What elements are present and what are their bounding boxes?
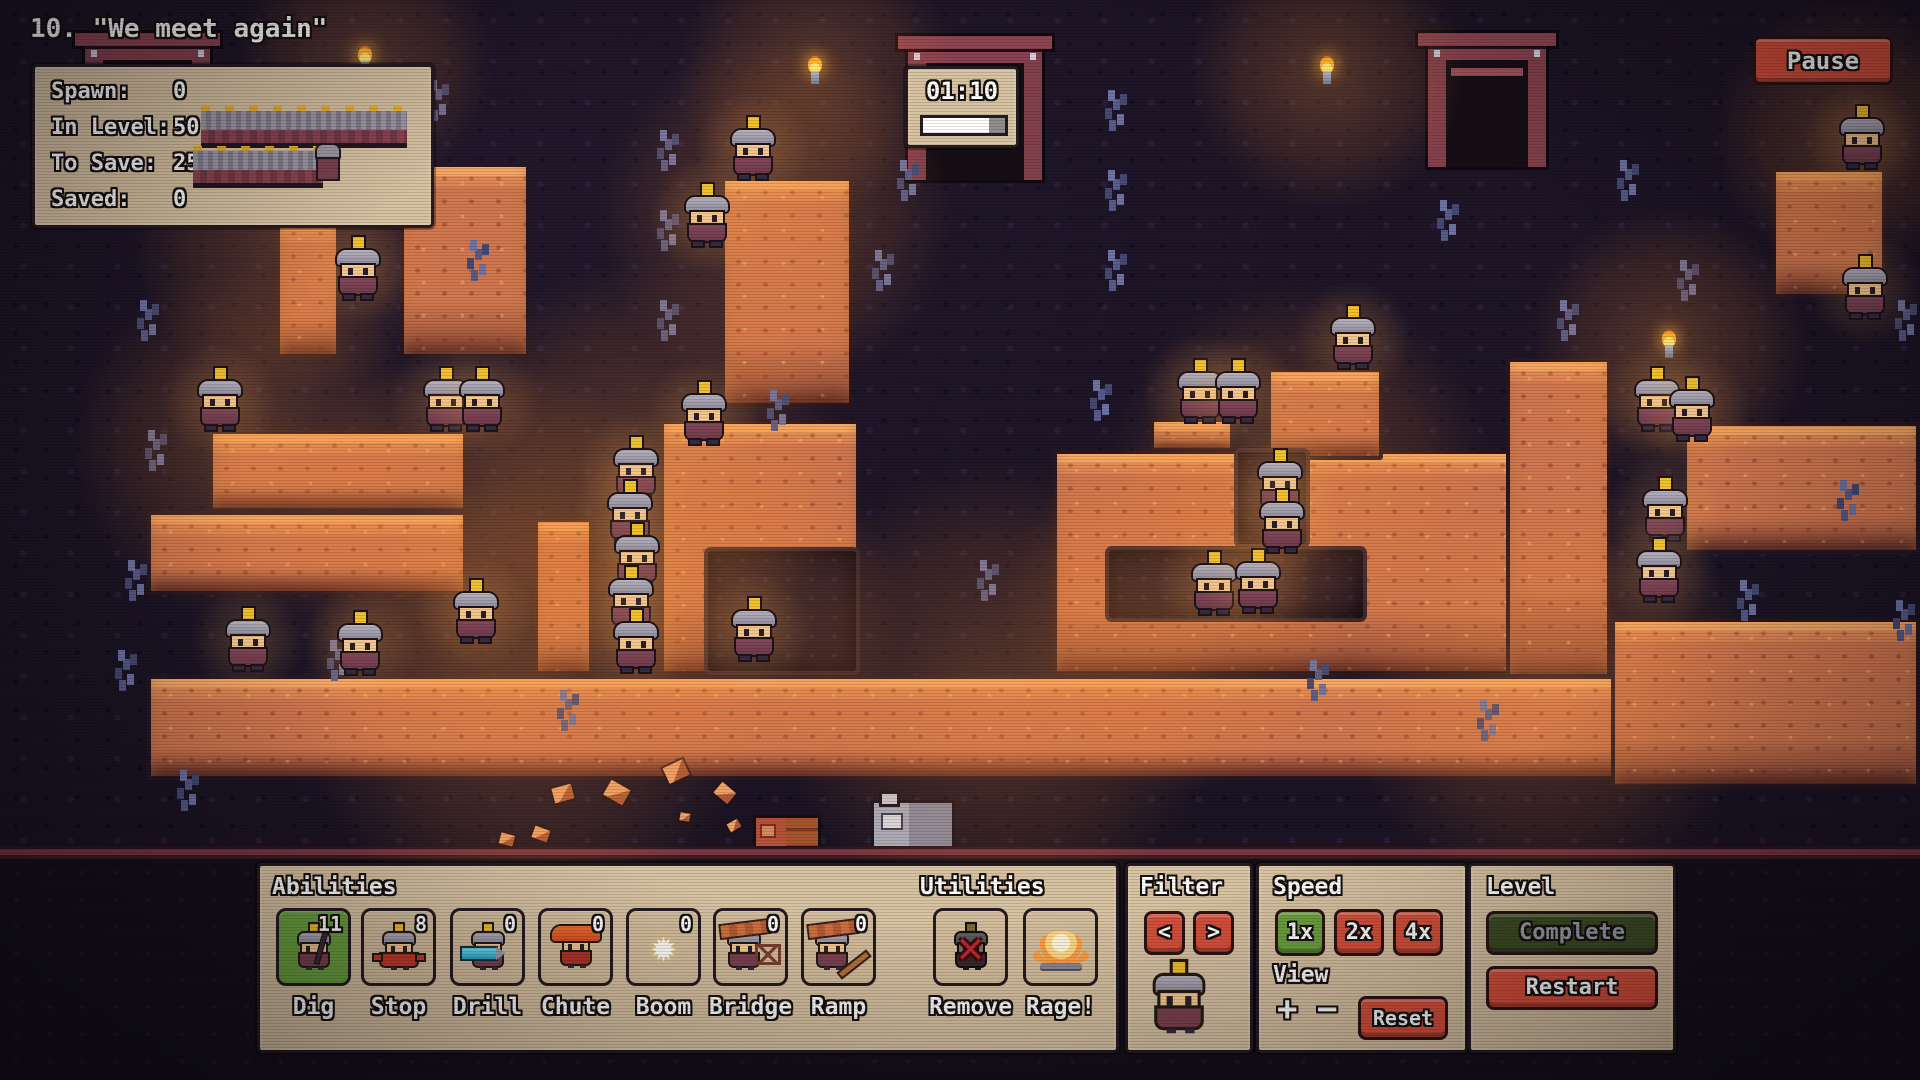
- miner-body: [1674, 419, 1710, 435]
- miner[interactable]: [452, 580, 500, 642]
- filter-next-button[interactable]: >: [1193, 911, 1234, 955]
- rage-button[interactable]: [1023, 908, 1098, 986]
- crowd-endcap-miner: [317, 145, 339, 181]
- miner-feet: [1244, 608, 1254, 612]
- boom-button[interactable]: 0 ✹: [626, 908, 701, 986]
- stat-row-spawn: Spawn:0: [51, 81, 186, 111]
- miner-face: [344, 640, 376, 653]
- pause-button[interactable]: Pause: [1753, 36, 1893, 85]
- in-level-crowd-bar: [201, 111, 407, 148]
- miner-feet: [1848, 164, 1858, 168]
- miner-helmet: [1217, 373, 1259, 388]
- timer-progress-fill: [923, 118, 989, 133]
- dirt-debris-particle: [727, 819, 742, 833]
- torch-icon: [1662, 330, 1676, 358]
- mineral-speckles: [1108, 170, 1115, 181]
- torch-stem: [811, 71, 819, 84]
- miner-body: [736, 639, 772, 655]
- timer-panel: 01:10: [905, 66, 1019, 148]
- miner-face: [738, 626, 770, 639]
- door-light-pip: [91, 50, 97, 57]
- door-light-pip: [1434, 50, 1440, 57]
- miner-face: [466, 396, 498, 409]
- torch-icon: [808, 56, 822, 84]
- miner-body: [202, 409, 238, 425]
- miner-face: [620, 638, 652, 651]
- door-inner-lintel: [1451, 68, 1523, 76]
- miner-body: [342, 653, 378, 669]
- view-reset-button[interactable]: Reset: [1358, 996, 1448, 1040]
- utility-remove: ✕ Remove: [933, 908, 1008, 986]
- miner[interactable]: [336, 612, 384, 674]
- torch-stem: [1323, 71, 1331, 84]
- spawn-door: [1428, 45, 1546, 167]
- miner-face: [1643, 567, 1675, 580]
- remove-x-icon: ✕: [936, 911, 1005, 983]
- miner-body: [618, 651, 654, 667]
- mineral-speckles: [1440, 200, 1447, 211]
- miner-face: [1337, 334, 1369, 347]
- stats-panel: Spawn:0 In Level:50 To Save:25 Saved:0: [32, 64, 434, 228]
- door-lintel: [898, 36, 1052, 49]
- stat-row-in-level: In Level:50: [51, 117, 200, 147]
- miner-body: [1641, 580, 1677, 596]
- timer-value: 01:10: [908, 79, 1016, 103]
- level-panel: Level Complete Restart: [1468, 863, 1676, 1053]
- miner-helmet: [461, 381, 503, 396]
- utilities-header: Utilities: [920, 876, 1045, 899]
- mineral-speckles: [1108, 250, 1115, 261]
- ability-dig: 11 Dig: [276, 908, 351, 986]
- miner-body: [1847, 297, 1883, 313]
- timer-progress-bar: [920, 115, 1008, 136]
- chevron-right-icon: >: [1207, 922, 1220, 944]
- rage-label: Rage!: [1026, 996, 1095, 1019]
- abilities-panel: Abilities Utilities 11 Dig 8 Stop 0 Dril…: [257, 863, 1119, 1053]
- miner-feet: [462, 638, 472, 642]
- mineral-speckles: [1740, 580, 1747, 591]
- miner-body: [1335, 347, 1371, 363]
- miner[interactable]: [730, 598, 778, 660]
- miner[interactable]: [1258, 490, 1306, 552]
- miner-feet: [740, 656, 750, 660]
- dirt-debris-particle: [603, 780, 630, 805]
- miner-face: [460, 608, 492, 621]
- miner-helmet: [732, 130, 774, 145]
- miner-feet: [344, 295, 354, 299]
- miner-feet: [206, 426, 216, 430]
- miner-body: [340, 278, 376, 294]
- dirt-debris-particle: [531, 826, 550, 843]
- miner[interactable]: [458, 368, 506, 430]
- ramp-button[interactable]: 0: [801, 908, 876, 986]
- miner-helmet: [615, 623, 657, 638]
- miner-face: [1849, 284, 1881, 297]
- mineral-speckles: [180, 770, 187, 781]
- drill-bit-icon: [462, 948, 496, 959]
- mineral-speckles: [1680, 260, 1687, 271]
- torch-stem: [1665, 345, 1673, 358]
- mineral-speckles: [980, 560, 987, 571]
- miner-face: [1846, 134, 1878, 147]
- miner-feet: [1645, 597, 1655, 601]
- door-lintel: [1418, 33, 1556, 46]
- mineral-speckles: [1480, 700, 1487, 711]
- miner-helmet: [1332, 319, 1374, 334]
- speed-header: Speed: [1273, 876, 1342, 899]
- view-header: View: [1273, 964, 1328, 987]
- miner-feet: [234, 666, 244, 670]
- mineral-speckles: [1896, 600, 1903, 611]
- door-light-pip: [198, 50, 204, 57]
- rage-explosion-icon: [1038, 931, 1084, 963]
- mineral-speckles: [1840, 480, 1847, 491]
- miner[interactable]: [224, 608, 272, 670]
- mineral-speckles: [128, 560, 135, 571]
- miner-helmet: [1844, 269, 1886, 284]
- miner-body: [1220, 401, 1256, 417]
- miner[interactable]: [1214, 360, 1262, 422]
- miner-face: [342, 265, 374, 278]
- chute-label: Chute: [541, 996, 610, 1019]
- mineral-speckles: [1108, 90, 1115, 101]
- level-header: Level: [1486, 876, 1555, 899]
- miner[interactable]: [729, 117, 777, 179]
- dig-label: Dig: [293, 996, 335, 1019]
- bridge-trestle-icon: [755, 944, 781, 965]
- miner[interactable]: [196, 368, 244, 430]
- dirt-debris-particle: [714, 782, 736, 804]
- remove-button[interactable]: ✕: [933, 908, 1008, 986]
- remove-label: Remove: [929, 996, 1012, 1019]
- mineral-speckles: [118, 650, 125, 661]
- mineral-speckles: [148, 430, 155, 441]
- chevron-left-icon: <: [1158, 922, 1171, 944]
- ability-chute: 0 Chute: [538, 908, 613, 986]
- miner-body: [1240, 591, 1276, 607]
- miner-feet: [1224, 418, 1234, 422]
- mineral-speckles: [1560, 300, 1567, 311]
- miner[interactable]: [612, 610, 660, 672]
- miner-face: [1676, 406, 1708, 419]
- filter-miner-icon: [1153, 962, 1206, 1033]
- mineral-speckles: [900, 160, 907, 171]
- chute-miner-icon: [559, 924, 593, 970]
- stat-row-to-save: To Save:25: [51, 153, 200, 183]
- terrain-block: [1611, 618, 1920, 788]
- light-glow: [1188, 0, 1468, 212]
- door-light-pip: [1030, 53, 1036, 60]
- miner-helmet: [1644, 491, 1686, 506]
- miner-feet: [1851, 314, 1861, 318]
- miner-helmet: [1841, 119, 1883, 134]
- ramp-label: Ramp: [811, 996, 866, 1019]
- miner-feet: [1678, 436, 1688, 440]
- filter-prev-button[interactable]: <: [1144, 911, 1185, 955]
- miner-helmet: [339, 625, 381, 640]
- miner-body: [1264, 531, 1300, 547]
- mineral-speckles: [660, 130, 667, 141]
- stat-row-saved: Saved:0: [51, 189, 186, 219]
- miner-feet: [693, 242, 703, 246]
- miner-helmet: [733, 611, 775, 626]
- miner-helmet: [455, 593, 497, 608]
- mineral-speckles: [560, 690, 567, 701]
- to-save-crowd-bar: [193, 151, 323, 188]
- speed-panel: Speed 1x 2x 4x View + − Reset: [1256, 863, 1468, 1053]
- bridge-button[interactable]: 0: [713, 908, 788, 986]
- stop-button[interactable]: 8: [361, 908, 436, 986]
- miner[interactable]: [1838, 106, 1886, 168]
- door-light-pip: [1534, 50, 1540, 57]
- bridge-label: Bridge: [709, 996, 792, 1019]
- level-complete-button[interactable]: Complete: [1486, 911, 1658, 955]
- miner-face: [688, 410, 720, 423]
- miner[interactable]: [1635, 539, 1683, 601]
- miner-body: [230, 649, 266, 665]
- stop-label: Stop: [371, 996, 426, 1019]
- miner-helmet: [1261, 503, 1303, 518]
- miner[interactable]: [1668, 378, 1716, 440]
- miner-helmet: [1671, 391, 1713, 406]
- miner-feet: [346, 670, 356, 674]
- miner-face: [204, 396, 236, 409]
- boom-label: Boom: [636, 996, 691, 1019]
- torch-icon: [1320, 56, 1334, 84]
- level-floor-line: [0, 846, 1920, 859]
- miner-face: [691, 212, 723, 225]
- mineral-speckles: [875, 250, 882, 261]
- miner-helmet: [227, 621, 269, 636]
- miner-face: [1266, 518, 1298, 531]
- miner-helmet: [683, 395, 725, 410]
- miner-feet: [468, 426, 478, 430]
- mineral-speckles: [140, 300, 147, 311]
- miner-body: [735, 158, 771, 174]
- mineral-speckles: [770, 390, 777, 401]
- miner-feet: [622, 668, 632, 672]
- filter-header: Filter: [1140, 876, 1223, 899]
- door-light-pip: [914, 53, 920, 60]
- mineral-speckles: [1620, 160, 1627, 171]
- speed-4x-button[interactable]: 4x: [1393, 909, 1443, 956]
- mineral-speckles: [470, 240, 477, 251]
- ability-drill: 0 Drill: [450, 908, 525, 986]
- miner-helmet: [199, 381, 241, 396]
- chute-button[interactable]: 0: [538, 908, 613, 986]
- filter-panel: Filter < >: [1125, 863, 1253, 1053]
- ability-bridge: 0 Bridge: [713, 908, 788, 986]
- drill-label: Drill: [453, 996, 522, 1019]
- miner-body: [689, 225, 725, 241]
- miner-body: [458, 621, 494, 637]
- dirt-debris-particle: [551, 784, 574, 804]
- utility-rage: Rage!: [1023, 908, 1098, 986]
- dirt-debris-particle: [679, 812, 690, 821]
- miner-face: [232, 636, 264, 649]
- miner[interactable]: [1841, 256, 1889, 318]
- level-title: 10. "We meet again": [30, 16, 327, 42]
- miner-body: [1844, 147, 1880, 163]
- ability-ramp: 0 Ramp: [801, 908, 876, 986]
- miner-face: [737, 145, 769, 158]
- level-restart-button[interactable]: Restart: [1486, 966, 1658, 1010]
- miner-helmet: [337, 250, 379, 265]
- speed-2x-button[interactable]: 2x: [1334, 909, 1384, 956]
- zoom-in-button[interactable]: +: [1277, 992, 1297, 1026]
- mineral-speckles: [1093, 380, 1100, 391]
- ability-stop: 8 Stop: [361, 908, 436, 986]
- miner-face: [1222, 388, 1254, 401]
- miner-feet: [739, 175, 749, 179]
- miner-feet: [1268, 548, 1278, 552]
- zoom-out-button[interactable]: −: [1317, 992, 1337, 1026]
- explosion-star-icon: ✹: [650, 925, 677, 969]
- speed-1x-button[interactable]: 1x: [1275, 909, 1325, 956]
- ability-boom: 0 ✹ Boom: [626, 908, 701, 986]
- game-stage: 10. "We meet again" Spawn:0 In Level:50 …: [0, 0, 1920, 1080]
- miner-body: [464, 409, 500, 425]
- dirt-debris-particle: [499, 832, 515, 846]
- miner-helmet: [1638, 552, 1680, 567]
- drill-button[interactable]: 0: [450, 908, 525, 986]
- mineral-speckles: [660, 300, 667, 311]
- miner[interactable]: [334, 237, 382, 299]
- miner[interactable]: [1329, 306, 1377, 368]
- stop-miner-icon: [382, 924, 416, 970]
- dig-button[interactable]: 11: [276, 908, 351, 986]
- mineral-speckles: [1310, 660, 1317, 671]
- miner-feet: [1339, 364, 1349, 368]
- abilities-header: Abilities: [272, 876, 397, 899]
